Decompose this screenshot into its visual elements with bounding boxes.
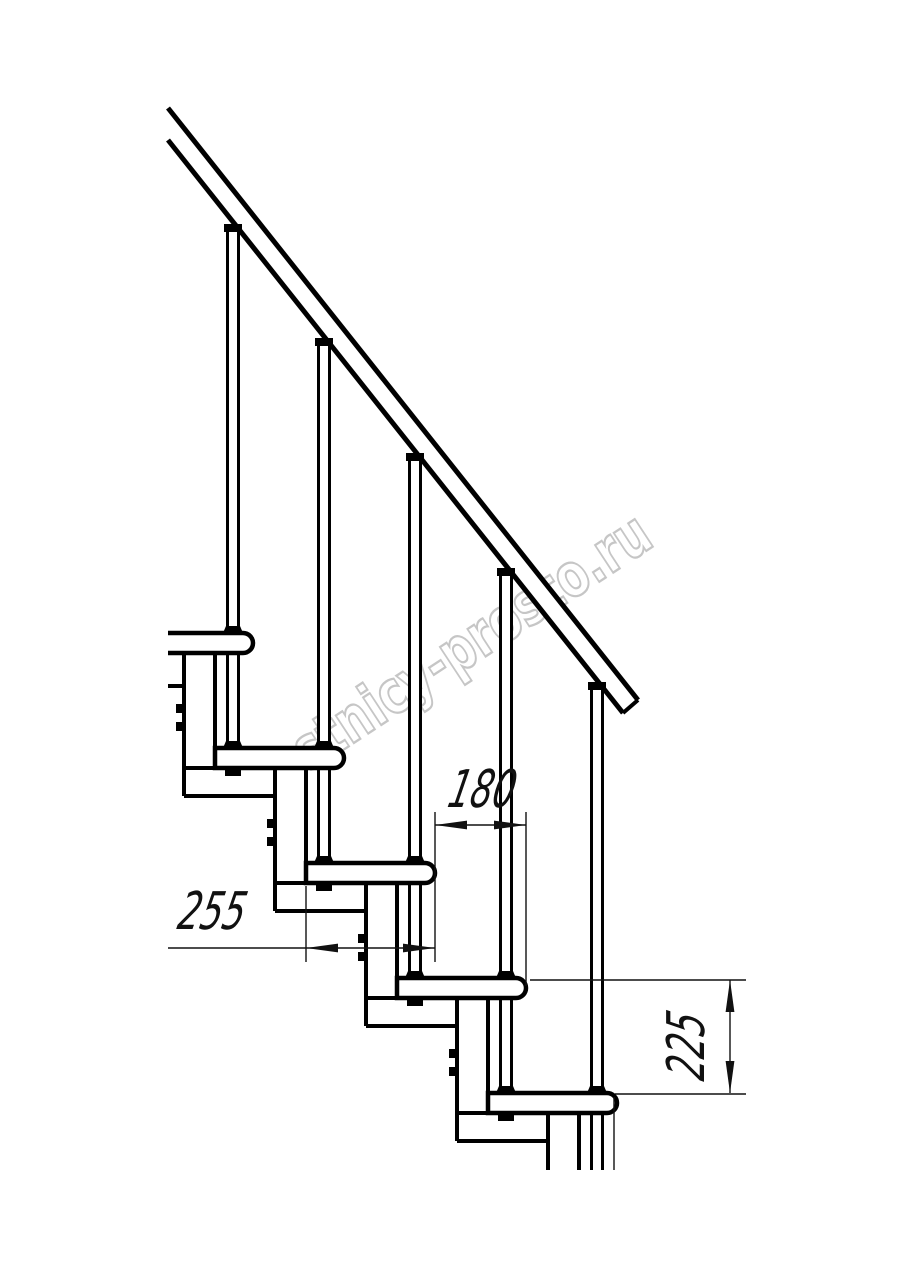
dimension-label-225: 225 xyxy=(657,1006,717,1085)
rail-connector xyxy=(224,224,242,232)
under-nut xyxy=(225,769,241,776)
under-nut xyxy=(407,999,423,1006)
bolt xyxy=(449,1049,457,1058)
baluster-foot xyxy=(314,856,334,863)
rail-connector xyxy=(588,682,606,690)
nose-clamp xyxy=(405,856,425,863)
staircase-drawing: lestnicy-prosto.ru xyxy=(0,0,914,1280)
bolt xyxy=(267,837,275,846)
nose-clamp xyxy=(496,971,516,978)
rail-connector xyxy=(406,453,424,461)
under-nut xyxy=(498,1114,514,1121)
tread xyxy=(488,1093,617,1113)
step-module-support xyxy=(548,1113,579,1170)
rail-connector xyxy=(315,338,333,346)
dimension-label-180: 180 xyxy=(443,760,522,820)
baluster xyxy=(408,455,422,978)
tread xyxy=(306,863,435,883)
under-nut xyxy=(316,884,332,891)
bolt xyxy=(267,819,275,828)
rail-connector xyxy=(497,568,515,576)
baluster xyxy=(226,226,240,748)
tread xyxy=(397,978,526,998)
bolt xyxy=(176,722,184,731)
bolt xyxy=(358,934,366,943)
nose-clamp xyxy=(314,741,334,748)
baluster xyxy=(317,340,331,863)
baluster-foot xyxy=(223,741,243,748)
dimension-label-255: 255 xyxy=(173,882,252,942)
tread xyxy=(215,748,344,768)
baluster xyxy=(499,570,513,1093)
nose-clamp xyxy=(587,1086,607,1093)
staircase-drawing-page: lestnicy-prosto.ru xyxy=(0,0,914,1280)
bolt xyxy=(176,704,184,713)
bolt xyxy=(358,952,366,961)
baluster-foot xyxy=(496,1086,516,1093)
bolt xyxy=(449,1067,457,1076)
nose-clamp xyxy=(223,626,243,633)
baluster-foot xyxy=(405,971,425,978)
tread xyxy=(168,633,253,653)
